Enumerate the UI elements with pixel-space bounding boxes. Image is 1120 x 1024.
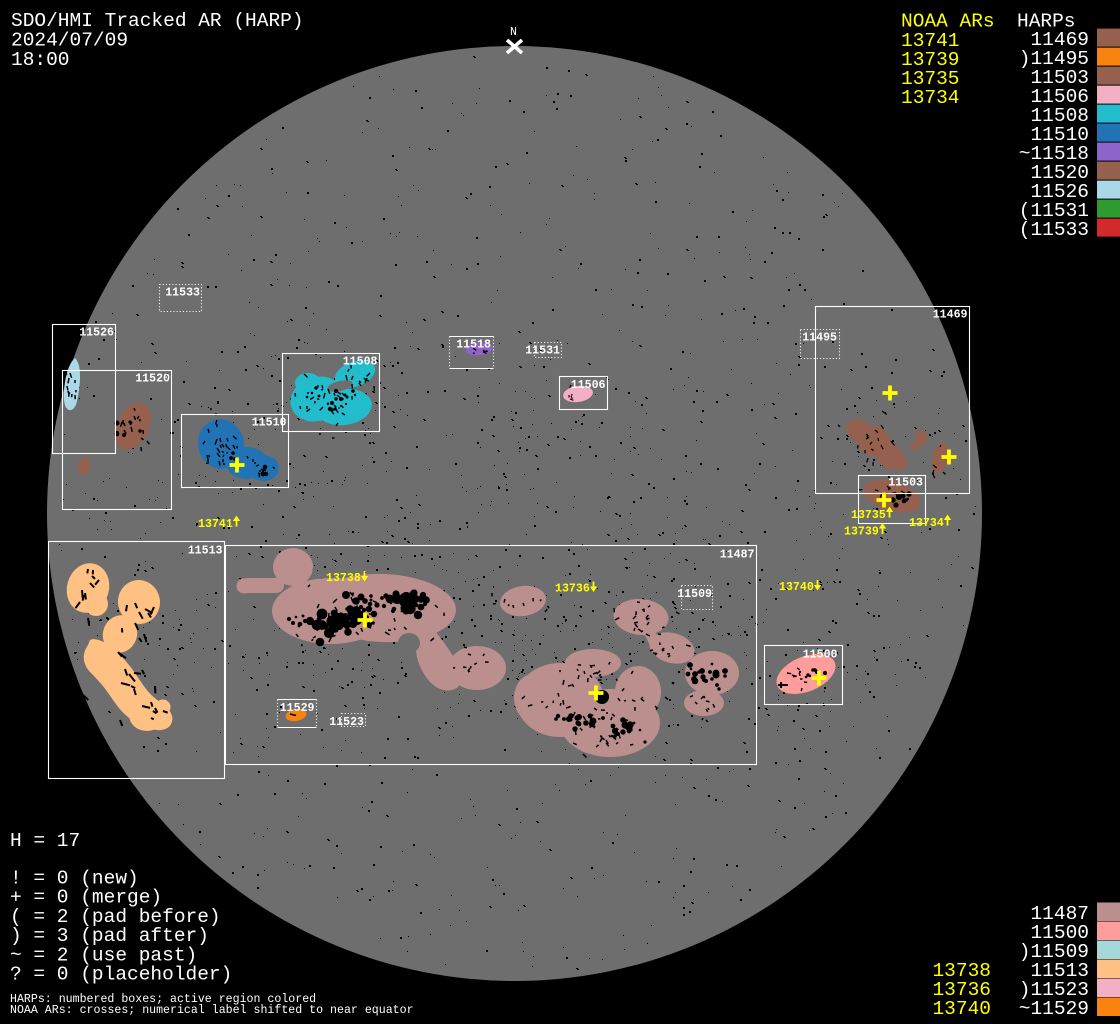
svg-text:N: N xyxy=(510,26,517,39)
svg-text:11503: 11503 xyxy=(888,477,923,490)
svg-text:11509: 11509 xyxy=(677,588,712,601)
svg-text:11508: 11508 xyxy=(343,356,378,369)
svg-text:? = 0 (placeholder): ? = 0 (placeholder) xyxy=(10,964,232,986)
svg-text:11500: 11500 xyxy=(803,649,838,662)
svg-text:11523: 11523 xyxy=(329,716,364,729)
svg-text:11533: 11533 xyxy=(165,287,200,300)
svg-text:13736: 13736 xyxy=(555,583,590,596)
svg-text:H = 17: H = 17 xyxy=(10,830,80,852)
svg-text:11495: 11495 xyxy=(802,332,837,345)
svg-text:13735: 13735 xyxy=(851,509,886,522)
svg-text:~11529: ~11529 xyxy=(1019,998,1089,1020)
svg-text:(11533: (11533 xyxy=(1019,219,1089,241)
svg-text:13738: 13738 xyxy=(326,572,361,585)
svg-text:13740: 13740 xyxy=(779,581,814,594)
svg-text:11529: 11529 xyxy=(280,702,315,715)
svg-text:11510: 11510 xyxy=(252,417,287,430)
svg-text:11531: 11531 xyxy=(525,345,560,358)
svg-text:18:00: 18:00 xyxy=(11,49,70,71)
svg-text:11513: 11513 xyxy=(188,545,223,558)
svg-text:11487: 11487 xyxy=(720,549,755,562)
svg-text:11520: 11520 xyxy=(135,373,170,386)
svg-text:13734: 13734 xyxy=(901,87,960,109)
svg-text:13740: 13740 xyxy=(932,998,991,1020)
svg-text:13734: 13734 xyxy=(909,517,944,530)
svg-text:11526: 11526 xyxy=(79,327,114,340)
svg-text:11469: 11469 xyxy=(933,309,968,322)
svg-text:13741: 13741 xyxy=(198,518,233,531)
svg-text:11518: 11518 xyxy=(456,339,491,352)
svg-text:13739: 13739 xyxy=(844,526,879,539)
svg-text:NOAA ARs: crosses; numerical l: NOAA ARs: crosses; numerical label shift… xyxy=(10,1004,414,1017)
svg-text:11506: 11506 xyxy=(571,379,606,392)
